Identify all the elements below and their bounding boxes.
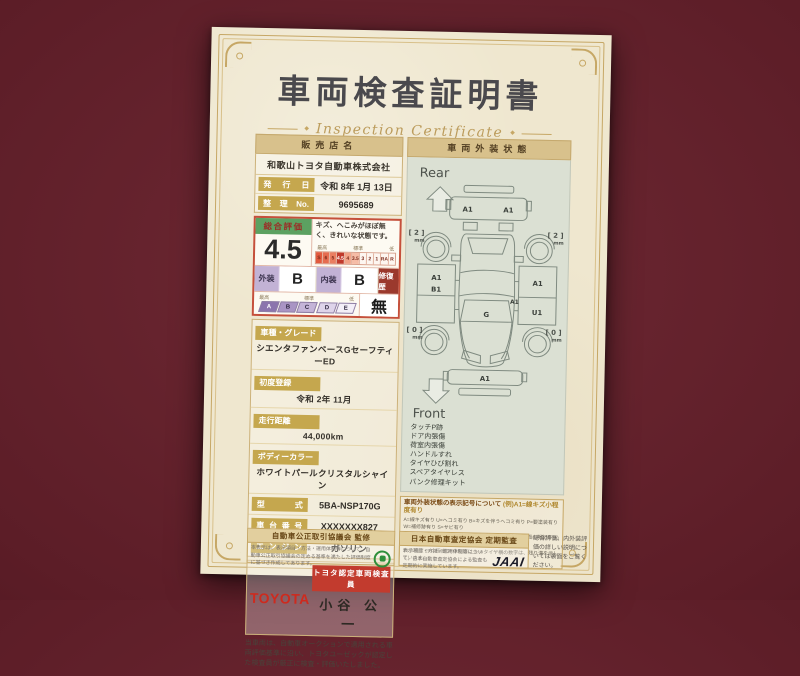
exterior-grade-value: B: [279, 266, 317, 292]
certification-mark-icon: [373, 550, 390, 567]
table-row: 走行距離 44,000km: [250, 407, 397, 446]
grade-cell: E: [335, 303, 357, 314]
grade-cell: C: [296, 302, 318, 313]
corner-flourish-bottom-left: [215, 534, 242, 561]
photo-background: { "colors": { "background_maroon": "#5c1…: [0, 0, 800, 600]
rear-direction-label: Rear: [420, 166, 451, 181]
see-back-note: 総合評価、内外装評価の詳しい説明については裏面をご覧ください。: [532, 535, 588, 572]
tire-tread-front-left: [ 0 ]: [406, 326, 422, 334]
subtitle-rule-left: [268, 128, 298, 130]
mark-left-side-b: B1: [431, 286, 442, 294]
rating-score: 4.5: [255, 234, 312, 266]
interior-grade-value: B: [341, 268, 379, 294]
rating-scale-band: S 6 5 4.5 4 3.5 3 2 1 RA R: [315, 251, 396, 266]
vehicle-details-table: 車種・グレード シエンタファンベースGセーフティーED 初度登録 令和 2年 1…: [247, 319, 400, 560]
diamond-ornament-icon: ◆: [304, 126, 309, 132]
mark-windshield: G: [483, 311, 489, 319]
tire-tread-unit: mm: [414, 238, 424, 244]
rear-arrow-icon: [427, 187, 453, 212]
car-diagram: A1 A1 A1 B1 A1 A1 U1 G A1 Rear Front [ 2…: [403, 157, 570, 424]
inspection-disclaimer: 当車両は、自動車オークションで適用される車両評価基準に沿い、トヨタユーゼックが認…: [244, 639, 393, 671]
table-row: 初度登録 令和 2年 11月: [251, 369, 398, 410]
rating-comment: キズ、へこみがほぼ無く、きれいな状態です。: [315, 221, 396, 246]
mark-rear-bumper-left: A1: [462, 206, 473, 214]
exterior-grade-label: 外装: [254, 266, 280, 292]
seller-table: 和歌山トヨタ自動車株式会社 発行日 令和 8年 1月 13日 整理No. 969…: [254, 154, 403, 216]
certificate-sheet: 車両検査証明書 ◆ Inspection Certificate ◆ 販売店名 …: [200, 27, 611, 582]
grade-row: 外装 B 内装 B 修復歴: [254, 266, 399, 295]
tire-tread-rear-left: [ 2 ]: [408, 229, 424, 237]
ref-no-label: 整理No.: [258, 196, 314, 211]
scale-cell: RA: [380, 253, 388, 264]
table-row: 型式 5BA-NSP170G: [249, 493, 395, 517]
grade-scale-band: A B C D E: [257, 301, 356, 314]
overall-rating-box: 総合評価 4.5 キズ、へこみがほぼ無く、きれいな状態です。 最高 標準 低 S…: [252, 216, 402, 319]
front-direction-label: Front: [412, 406, 445, 422]
mark-front-bumper: A1: [480, 375, 491, 383]
ref-no-row: 整理No. 9695689: [255, 193, 401, 215]
rating-score-cell: 総合評価 4.5: [255, 218, 313, 266]
jaai-logo: JAAI: [492, 554, 526, 570]
issue-date-value: 令和 8年 1月 13日: [314, 179, 398, 194]
tire-tread-unit: mm: [551, 338, 561, 344]
seller-name: 和歌山トヨタ自動車株式会社: [256, 154, 402, 178]
model-code-label: 型式: [252, 497, 308, 512]
grade-scale-cell: 最高 標準 低 A B C D E: [254, 292, 360, 316]
table-row: 車種・グレード シエンタファンベースGセーフティーED: [252, 320, 399, 372]
mark-right-side-lower: U1: [532, 309, 543, 317]
left-column: 販売店名 和歌山トヨタ自動車株式会社 発行日 令和 8年 1月 13日 整理No…: [244, 134, 403, 671]
model-code-value: 5BA-NSP170G: [308, 500, 392, 512]
grade-scale-row: 最高 標準 低 A B C D E 無: [254, 292, 398, 317]
condition-notes-list: タッチP跡 ドア内張傷 荷室内張傷 ハンドルすれ タイヤひび割れ スペアタイヤレ…: [401, 421, 564, 494]
exterior-diagram-panel: A1 A1 A1 B1 A1 A1 U1 G A1 Rear Front [ 2…: [400, 157, 571, 495]
rating-header: 総合評価: [255, 218, 311, 235]
mark-rear-bumper-right: A1: [503, 206, 514, 214]
mileage-label: 走行距離: [253, 413, 319, 428]
toyota-logo: TOYOTA: [250, 589, 308, 606]
rating-comment-cell: キズ、へこみがほぼ無く、きれいな状態です。 最高 標準 低 S 6 5 4.5 …: [312, 219, 400, 268]
model-grade-label: 車種・グレード: [255, 325, 321, 340]
model-grade-value: シエンタファンベースGセーフティーED: [255, 340, 396, 372]
first-registration-label: 初度登録: [254, 375, 320, 390]
tire-tread-rear-right: [ 2 ]: [548, 232, 564, 240]
fair-trade-council-text: 本表示は、表示項目・方法・運用体制等について、自動車公正取引協議会の定める基準を…: [250, 545, 370, 570]
scale-cell: R: [388, 254, 395, 265]
fair-trade-council-box: 自動車公正取引協議会 監修 本表示は、表示項目・方法・運用体制等について、自動車…: [247, 528, 396, 566]
tire-tread-front-right: [ 0 ]: [545, 329, 561, 337]
front-arrow-icon: [423, 379, 449, 404]
mark-center-right: A1: [510, 300, 519, 306]
tire-tread-unit: mm: [553, 241, 563, 247]
mark-right-side-upper: A1: [532, 280, 543, 288]
subtitle-rule-right: [522, 133, 552, 135]
diamond-ornament-icon: ◆: [510, 130, 515, 136]
inspector-info: トヨタ認定車両検査員 小谷 公一: [311, 565, 390, 634]
inspector-name: 小谷 公一: [311, 591, 390, 634]
repair-history-label: 修復歴: [378, 268, 399, 293]
jaai-audit-box: 日本自動車査定協会 定期監査 表示項目・方法・運用体制等について、日本自動車査定…: [399, 531, 530, 569]
scale-cell-selected: 4.5: [336, 253, 344, 264]
ref-no-value: 9695689: [314, 199, 398, 211]
tire-tread-unit: mm: [412, 335, 422, 341]
right-column: 車両外装状態: [399, 137, 572, 569]
rating-top-row: 総合評価 4.5 キズ、へこみがほぼ無く、きれいな状態です。 最高 標準 低 S…: [255, 218, 400, 269]
interior-grade-label: 内装: [316, 267, 342, 293]
issue-date-label: 発行日: [258, 177, 314, 192]
body-color-label: ボディーカラー: [253, 449, 319, 464]
jaai-audit-text: 表示項目・方法・運用体制等について、日本自動車査定協会による監査も定期的に実施し…: [402, 548, 490, 572]
repair-history-value: 無: [360, 294, 398, 317]
scale-cell: 3.5: [351, 253, 359, 264]
mark-left-side-a: A1: [431, 274, 442, 282]
page-title: 車両検査証明書: [210, 63, 611, 119]
table-row: ボディーカラー ホワイトパールクリスタルシャイン: [249, 443, 396, 496]
list-item: パンク修理キット: [409, 478, 555, 490]
body-color-value: ホワイトパールクリスタルシャイン: [252, 464, 393, 496]
